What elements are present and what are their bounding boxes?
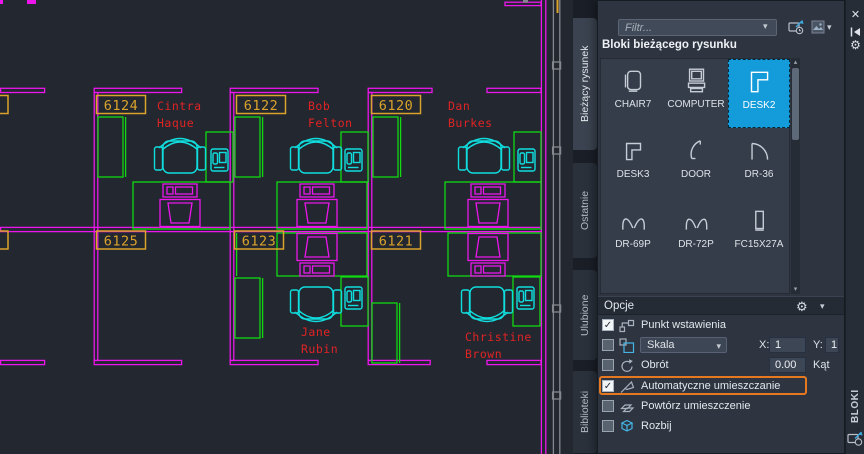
block-label: CHAIR7 [615,99,652,110]
palette-tabstrip: Bieżący rysunek Ostatnie Ulubione Biblio… [573,0,597,454]
explode-icon [619,419,635,434]
occupant-name: Rubin [301,342,338,356]
option-row-rotation: Obrót 0.00 Kąt [598,358,844,374]
occupant-name: Christine [465,330,532,344]
palette-panel: ▾ ▾ Bloki bieżącego rysunku [597,0,845,454]
block-tile-fc15x27a[interactable]: FC15X27A [728,199,790,268]
room-number: 6125 [104,233,139,249]
option-row-repeat-placement: Powtórz umieszczenie [598,399,844,415]
options-gear-icon[interactable]: ⚙ [796,297,808,316]
block-label: DESK2 [743,100,776,111]
scale-checkbox[interactable] [602,339,614,351]
scale-dropdown-value: Skala [647,339,675,351]
scale-icon [619,338,635,353]
insertion-point-icon [619,318,635,333]
palette-title-bar[interactable]: ✕ ⚙ BLOKI [845,0,864,454]
block-tile-desk3[interactable]: DESK3 [602,129,664,198]
explode-checkbox[interactable] [602,420,614,432]
scale-chevron-down-icon: ▾ [716,339,721,353]
options-title: Opcje [604,300,634,312]
blocks-palette: Bieżący rysunek Ostatnie Ulubione Biblio… [573,0,864,454]
tab-favorites[interactable]: Ulubione [573,270,597,360]
option-row-insertion-point: ✓ Punkt wstawienia [598,318,844,334]
block-label: DESK3 [617,169,650,180]
room-number: 6120 [379,98,414,114]
option-row-scale: Skala ▾ X: 1 Y: 1 [598,338,844,354]
option-row-explode: Rozbij [598,419,844,435]
close-icon[interactable]: ✕ [846,8,864,22]
view-chevron-down-icon[interactable]: ▾ [827,22,832,33]
room-number: 6124 [104,98,139,114]
filter-input[interactable] [618,19,777,36]
occupant-name: Felton [308,116,353,130]
insertion-point-checkbox[interactable]: ✓ [602,319,614,331]
rotation-label: Obrót [641,359,669,371]
block-label: COMPUTER [667,99,724,110]
tab-recent[interactable]: Ostatnie [573,163,597,258]
block-label: DR-69P [615,239,651,250]
occupant-name: Cintra [157,99,202,113]
block-tile-chair7[interactable]: CHAIR7 [602,59,664,128]
tab-libraries[interactable]: Biblioteki [573,371,597,453]
scale-y-label: Y: [813,339,823,351]
insertion-point-label: Punkt wstawienia [641,319,726,331]
scale-y-field[interactable]: 1 [825,337,839,353]
rotation-angle-field[interactable]: 0.00 [769,357,806,373]
repeat-placement-label: Powtórz umieszczenie [641,400,750,412]
occupant-name: Burkes [448,116,493,130]
block-tile-door[interactable]: DOOR [665,129,727,198]
block-tile-desk2[interactable]: DESK2 [728,59,790,128]
auto-placement-highlight-callout [599,376,807,395]
block-label: FC15X27A [735,239,784,250]
filter-chevron-down-icon[interactable]: ▾ [763,21,768,32]
drawing-canvas[interactable]: 6124 6122 6120 6125 6123 6121 Cintra Haq… [0,0,573,454]
room-number: 6121 [379,233,414,249]
rotation-icon [619,358,635,373]
insert-block-icon[interactable] [787,18,805,36]
scale-dropdown[interactable]: Skala ▾ [640,337,727,353]
repeat-placement-checkbox[interactable] [602,400,614,412]
blocks-palette-icon [847,430,864,452]
scroll-down-icon[interactable]: ▾ [791,285,800,294]
occupant-name: Dan [448,99,470,113]
block-label: DR-36 [745,169,774,180]
occupant-name: Brown [465,347,502,361]
blocks-section-title: Bloki bieżącego rysunku [602,39,737,51]
rotation-angle-label: Kąt [813,359,830,371]
block-tile-computer[interactable]: COMPUTER [665,59,727,128]
properties-gear-icon[interactable]: ⚙ [846,38,864,52]
application-window: 6124 6122 6120 6125 6123 6121 Cintra Haq… [0,0,864,454]
scale-x-field[interactable]: 1 [769,337,806,353]
palette-side-title: BLOKI [846,386,864,426]
block-label: DOOR [681,169,711,180]
room-number: 6123 [242,233,277,249]
block-tile-dr36[interactable]: DR-36 [728,129,790,198]
block-label: DR-72P [678,239,714,250]
auto-hide-icon[interactable] [846,24,864,38]
options-section-header[interactable]: Opcje ⚙ ▾ [598,296,844,315]
repeat-placement-icon [619,399,635,414]
scale-x-label: X: [759,339,769,351]
occupant-name: Haque [157,116,194,130]
occupant-name: Jane [301,325,331,339]
occupant-name: Bob [308,99,330,113]
rotation-checkbox[interactable] [602,359,614,371]
block-tile-dr72p[interactable]: DR-72P [665,199,727,268]
scroll-up-icon[interactable]: ▴ [791,58,800,67]
block-grid-scrollbar[interactable]: ▴ ▾ [791,58,800,294]
thumbnail-view-icon[interactable] [809,18,827,36]
room-number: 6122 [244,98,279,114]
options-chevron-down-icon[interactable]: ▾ [820,297,825,316]
block-tile-dr69p[interactable]: DR-69P [602,199,664,268]
scrollbar-thumb[interactable] [792,68,799,140]
explode-label: Rozbij [641,420,672,432]
tab-current-drawing[interactable]: Bieżący rysunek [573,18,597,150]
